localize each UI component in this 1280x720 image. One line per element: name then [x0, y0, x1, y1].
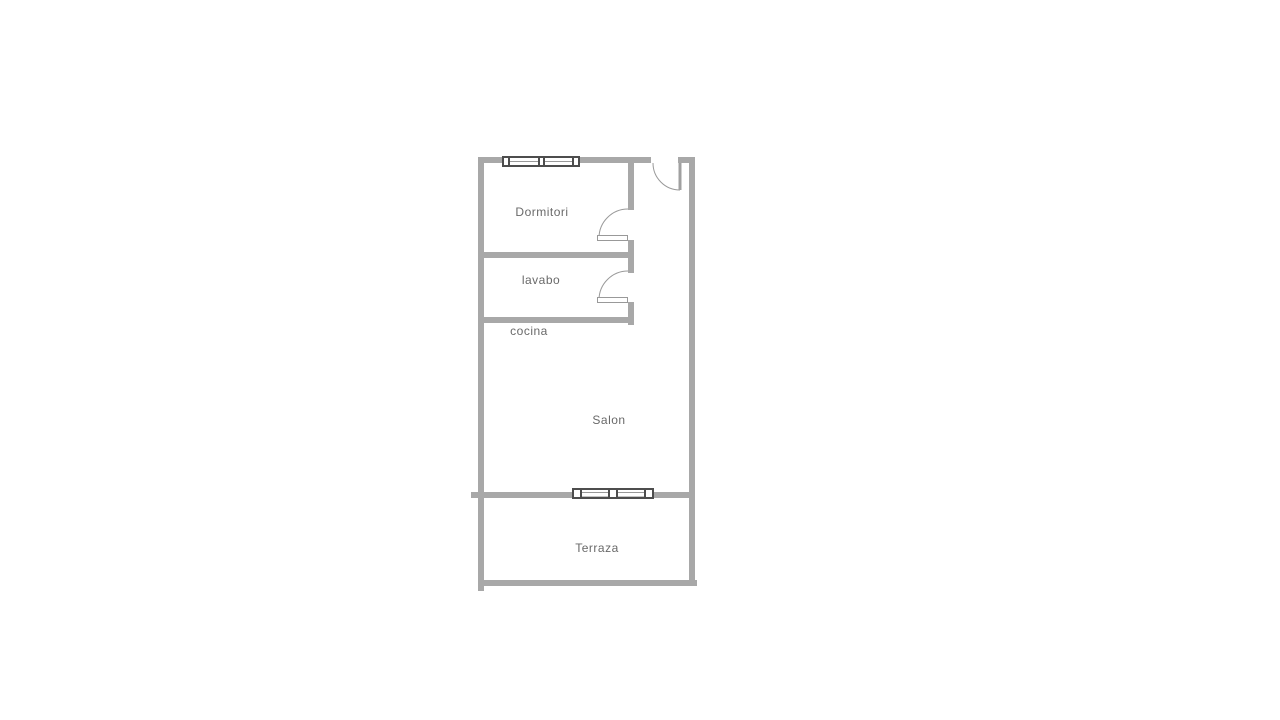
wall-bottom: [481, 580, 697, 586]
room-label-lavabo: lavabo: [522, 273, 560, 287]
room-label-dormitori: Dormitori: [515, 205, 568, 219]
wall-salon-terraza-right: [654, 492, 689, 498]
lavabo-door-leaf-icon: [598, 298, 628, 303]
room-label-salon: Salon: [592, 413, 625, 427]
entrance-door-arc-icon: [653, 163, 680, 190]
wall-left: [478, 157, 484, 591]
window-sash-tick: [572, 158, 574, 165]
room-label-cocina: cocina: [510, 324, 548, 338]
window-pane-square: [608, 488, 618, 499]
wall-hall-upper: [628, 163, 634, 210]
door-symbols: [0, 0, 1280, 720]
dormitori-window-icon: [502, 156, 580, 167]
lavabo-door-arc-icon: [599, 271, 628, 300]
wall-hall-middle: [628, 240, 634, 273]
wall-lavabo-cocina: [484, 317, 628, 323]
wall-dormitori-lavabo: [484, 252, 628, 258]
floor-plan: Dormitori lavabo cocina Salon Terraza: [0, 0, 1280, 720]
window-rail: [545, 161, 572, 162]
salon-terraza-window-icon: [572, 488, 654, 499]
window-pane-square: [644, 488, 654, 499]
room-label-terraza: Terraza: [575, 541, 619, 555]
wall-hall-lower: [628, 302, 634, 325]
wall-salon-terraza-left: [471, 492, 573, 498]
window-pane-square: [572, 488, 582, 499]
dormitori-door-leaf-icon: [598, 236, 628, 241]
window-rail: [510, 161, 538, 162]
dormitori-door-arc-icon: [599, 209, 628, 238]
wall-right: [689, 157, 695, 585]
window-divider-tick: [538, 158, 540, 165]
